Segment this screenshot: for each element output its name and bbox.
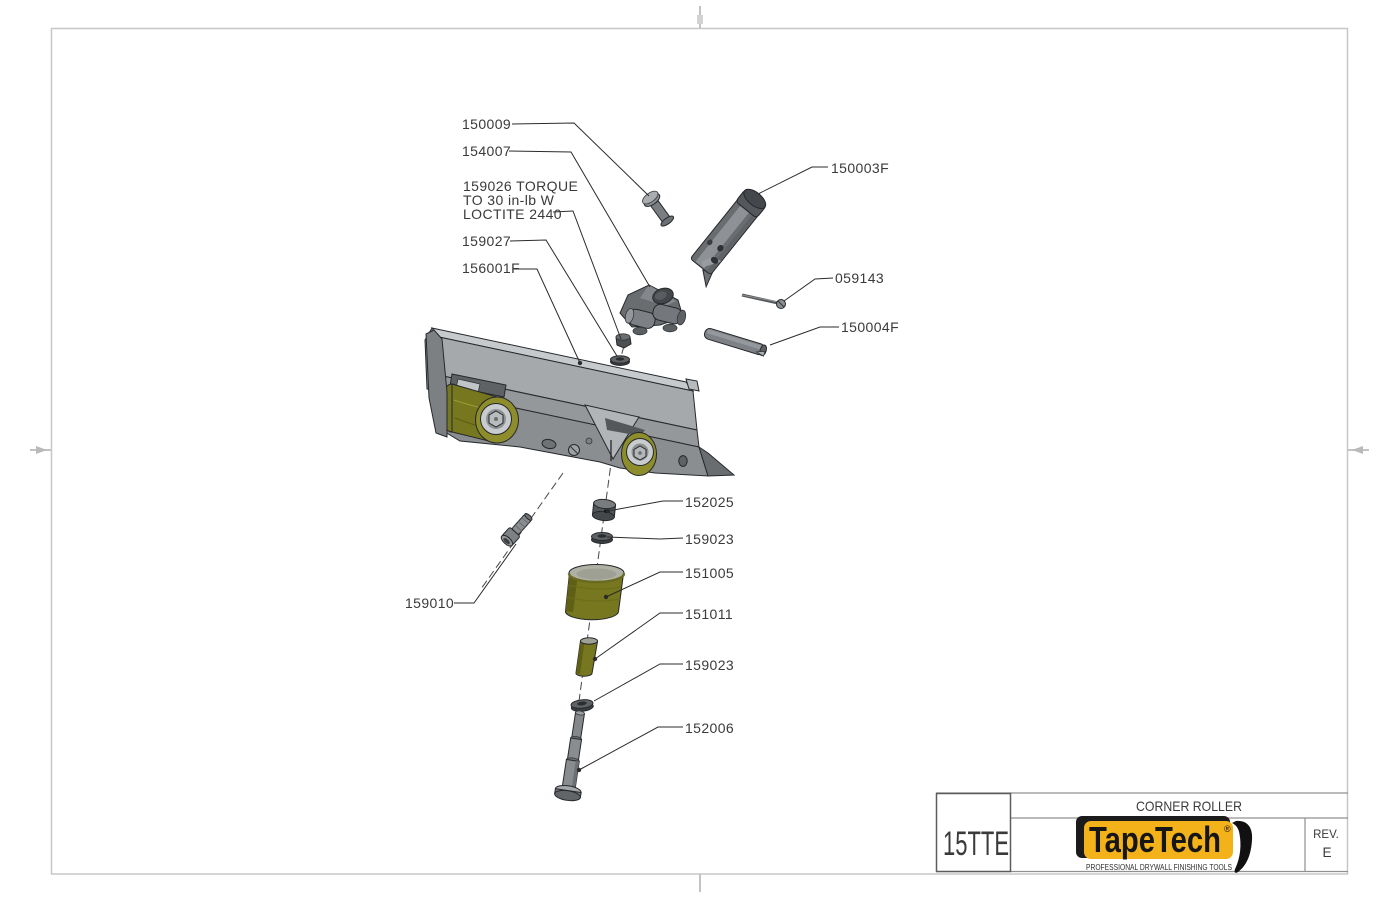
callout-152025-label: 152025 — [685, 494, 734, 510]
part-151005-roller — [565, 565, 624, 620]
callout-159027-label: 159027 — [462, 233, 511, 249]
callout-159023-upper-label: 159023 — [685, 531, 734, 547]
callout-150009-label: 150009 — [462, 116, 511, 132]
drawing-title: CORNER ROLLER — [1136, 798, 1242, 814]
leader-dot-151011 — [593, 657, 597, 661]
callout-159023-lower-label: 159023 — [685, 657, 734, 673]
callout-159026-label-line3: LOCTITE 2440 — [463, 206, 562, 222]
part-159023-washer-upper — [592, 533, 613, 544]
leader-dot-156001f — [578, 361, 582, 365]
leader-dot-151005 — [604, 595, 608, 599]
part-roller-right — [622, 433, 657, 476]
callout-152006-label: 152006 — [685, 720, 734, 736]
rev-label: REV. — [1313, 829, 1339, 841]
logo-brand-text: TapeTech — [1089, 819, 1221, 860]
callout-151005-label: 151005 — [685, 565, 734, 581]
model-number: 15TTE — [943, 825, 1009, 863]
callout-154007-label: 154007 — [462, 143, 511, 159]
tick-top-mark — [697, 15, 703, 24]
callout-159010-label: 159010 — [405, 595, 454, 611]
leader-dot-152006 — [577, 768, 581, 772]
rev-value: E — [1322, 845, 1331, 860]
callout-156001f-label: 156001F — [462, 260, 520, 276]
logo-registered-mark: ® — [1224, 824, 1231, 834]
callout-150003f-label: 150003F — [831, 160, 889, 176]
tapetech-logo: TapeTech ® PROFESSIONAL DRYWALL FINISHIN… — [1076, 816, 1252, 873]
callout-150004f-label: 150004F — [841, 319, 899, 335]
leader-dot-152025 — [606, 509, 610, 513]
drawing-sheet: 150009 154007 159026 TORQUE TO 30 in-lb … — [0, 0, 1400, 906]
part-159027-washer — [611, 356, 630, 366]
callout-059143-label: 059143 — [835, 270, 884, 286]
logo-tagline: PROFESSIONAL DRYWALL FINISHING TOOLS — [1086, 863, 1232, 872]
callout-151011-label: 151011 — [685, 606, 733, 622]
